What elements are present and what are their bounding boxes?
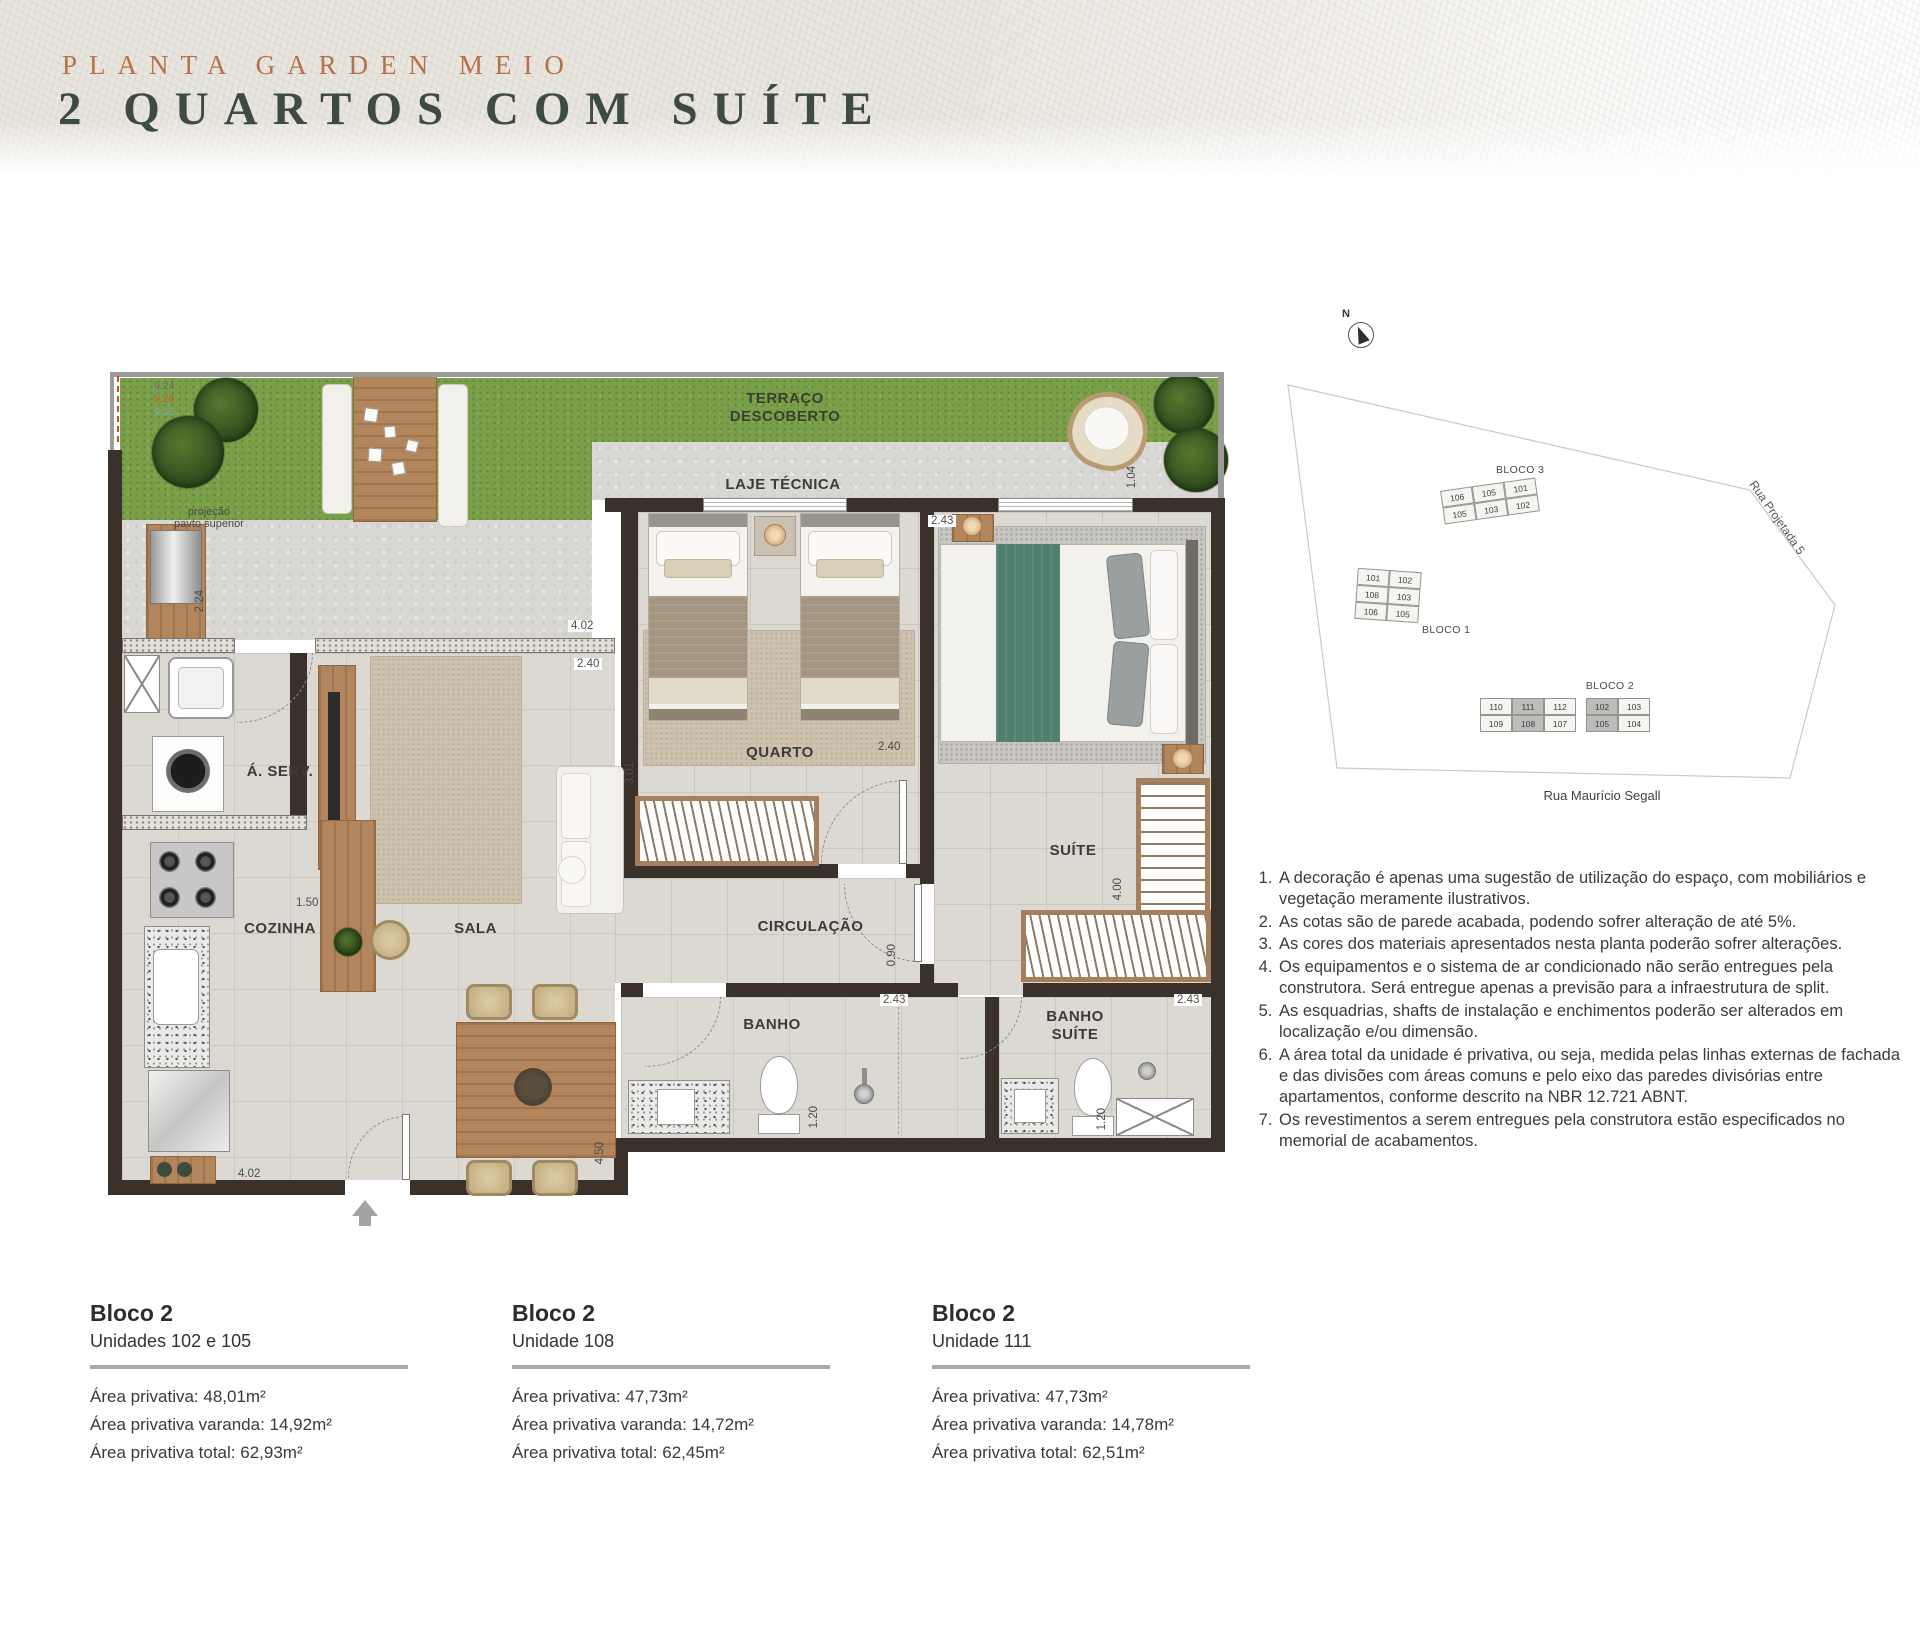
label-cozinha: COZINHA (220, 920, 340, 938)
level-920: 9.20 (154, 393, 174, 405)
unit-info-111: Bloco 2 Unidade 111 Área privativa: 47,7… (932, 1300, 1277, 1471)
label-circulacao: CIRCULAÇÃO (738, 918, 883, 936)
unit-cell: 109 (1480, 715, 1512, 732)
site-map: N BLOCO 3 106 105 101 105 103 102 BLOCO … (1090, 300, 1900, 820)
divider (90, 1365, 408, 1369)
bloco2-label: BLOCO 2 (1530, 680, 1690, 692)
label-suite: SUÍTE (1008, 842, 1138, 860)
brochure-page: PLANTA GARDEN MEIO 2 QUARTOS COM SUÍTE (0, 0, 1920, 1646)
level-915: 9.15 (154, 406, 174, 418)
note-item: As esquadrias, shafts de instalação e en… (1277, 1001, 1909, 1044)
stepping-stone (391, 461, 406, 476)
unit-name: Unidade 108 (512, 1331, 857, 1352)
stepping-stone (405, 439, 419, 453)
unit-cell: 110 (1480, 698, 1512, 715)
unit-block-title: Bloco 2 (932, 1300, 1277, 1327)
street-label-mauricio-segall: Rua Maurício Segall (1482, 788, 1722, 803)
unit-cell-highlighted: 105 (1586, 715, 1618, 732)
page-title: 2 QUARTOS COM SUÍTE (58, 82, 888, 136)
area-varanda: Área privativa varanda: 14,78m² (932, 1415, 1277, 1435)
dim-quarto-height: 3.01 (624, 762, 636, 784)
dining-chair (466, 1160, 512, 1196)
dim-sala-right: 4.50 (594, 1142, 606, 1164)
label-laje-tecnica: LAJE TÉCNICA (703, 476, 863, 494)
wall (906, 864, 920, 878)
wall (410, 1180, 628, 1195)
unit-cell: 102 (1389, 570, 1422, 589)
label-quarto: QUARTO (710, 744, 850, 762)
unit-cell-highlighted: 102 (1586, 698, 1618, 715)
lot-boundary (1090, 300, 1900, 820)
deck (353, 375, 437, 522)
floor-plan: TERRAÇO DESCOBERTO LAJE TÉCNICA QUARTO S… (108, 300, 1228, 1235)
sun-lounger (438, 384, 468, 527)
sun-lounger (322, 384, 352, 514)
wall (615, 864, 838, 878)
bloco2-building-left: 110 111 112 109 108 107 (1480, 698, 1576, 732)
wall (920, 498, 934, 884)
laundry-tank (168, 657, 234, 719)
dining-chair (532, 984, 578, 1020)
area-privativa: Área privativa: 47,73m² (932, 1387, 1277, 1407)
toilet (760, 1056, 798, 1114)
plan-kicker: PLANTA GARDEN MEIO (62, 50, 576, 81)
wall (621, 1138, 1225, 1152)
note-item: As cores dos materiais apresentados nest… (1277, 934, 1909, 955)
shower-partition (898, 1002, 899, 1134)
wall (605, 498, 703, 512)
label-aserv: Á. SERV. (220, 763, 340, 781)
note-item: A decoração é apenas uma sugestão de uti… (1277, 868, 1909, 911)
kitchen-bar (320, 820, 376, 992)
unit-cell-highlighted: 111 (1512, 698, 1544, 715)
bed-runner-green (996, 544, 1060, 742)
unit-cell: 104 (1618, 715, 1650, 732)
dim-banho-suite-width: 2.43 (1174, 994, 1202, 1006)
plant-icon (152, 416, 224, 488)
unit-name: Unidade 111 (932, 1331, 1277, 1352)
masonry-wall (315, 638, 615, 653)
toilet (758, 1114, 800, 1134)
bloco1-label: BLOCO 1 (1422, 624, 1470, 636)
stepping-stone (368, 448, 383, 463)
stove (150, 842, 234, 918)
wall (726, 983, 958, 997)
dining-chair (466, 984, 512, 1020)
sala-rug (370, 656, 522, 904)
entry-arrow-icon (359, 1215, 371, 1226)
dim-banho-suite-height: 1.20 (1096, 1108, 1108, 1130)
dim-sala-top2: 2.40 (574, 658, 602, 670)
unit-block-title: Bloco 2 (90, 1300, 435, 1327)
banho-suite-vanity (1001, 1078, 1059, 1134)
area-varanda: Área privativa varanda: 14,72m² (512, 1415, 857, 1435)
label-terraco: TERRAÇO DESCOBERTO (700, 390, 870, 426)
masonry-wall (122, 815, 307, 830)
lamp-icon (764, 524, 786, 546)
throw-pillow (558, 856, 586, 884)
dim-banho-height: 1.20 (808, 1106, 820, 1128)
fridge (148, 1070, 230, 1152)
unit-cell: 112 (1544, 698, 1576, 715)
table-centerpiece (514, 1068, 552, 1106)
unit-info-108: Bloco 2 Unidade 108 Área privativa: 47,7… (512, 1300, 857, 1471)
label-sala: SALA (418, 920, 533, 938)
wall (108, 1180, 345, 1195)
terrace-railing-top (110, 372, 1222, 377)
bar-stool (370, 920, 410, 960)
unit-cell: 107 (1544, 715, 1576, 732)
label-banho-suite: BANHO SUÍTE (1020, 1008, 1130, 1044)
single-bed (648, 513, 748, 721)
terrace-railing-left (110, 374, 114, 452)
bloco2-building-right: 102 103 105 104 (1586, 698, 1650, 732)
unit-cell: 105 (1386, 604, 1419, 623)
area-privativa: Área privativa: 47,73m² (512, 1387, 857, 1407)
stepping-stone (383, 425, 396, 438)
shaft-symbol (124, 655, 160, 713)
unit-cell: 106 (1354, 602, 1387, 621)
shower-icon (1138, 1062, 1156, 1080)
wall (621, 983, 643, 997)
entry-arrow-icon (352, 1200, 378, 1216)
unit-cell: 103 (1618, 698, 1650, 715)
unit-name: Unidades 102 e 105 (90, 1331, 435, 1352)
kitchen-cabinet (150, 1156, 216, 1184)
area-total: Área privativa total: 62,45m² (512, 1443, 857, 1463)
divider (932, 1365, 1250, 1369)
dim-cozinha: 1.50 (296, 897, 318, 909)
unit-info-102-105: Bloco 2 Unidades 102 e 105 Área privativ… (90, 1300, 435, 1471)
kitchen-counter (144, 926, 210, 1068)
entry-door-leaf (402, 1114, 410, 1180)
unit-cell-highlighted: 108 (1512, 715, 1544, 732)
bloco1-building: 101 102 108 103 106 105 (1354, 568, 1421, 623)
bloco3-label: BLOCO 3 (1496, 464, 1544, 476)
dim-suite-height: 4.00 (1112, 878, 1124, 900)
door-leaf (914, 884, 922, 962)
dim-circulacao: 0.90 (886, 944, 898, 966)
dim-cozinha-bottom: 4.02 (238, 1168, 260, 1180)
shower-arm (862, 1068, 867, 1084)
area-varanda: Área privativa varanda: 14,92m² (90, 1415, 435, 1435)
note-item: Os revestimentos a serem entregues pela … (1277, 1110, 1909, 1153)
note-item: A área total da unidade é privativa, ou … (1277, 1045, 1909, 1109)
legal-notes-list: A decoração é apenas uma sugestão de uti… (1255, 868, 1909, 1154)
lamp-icon (962, 516, 982, 536)
shower-icon (854, 1084, 874, 1104)
quarto-wardrobe (635, 796, 819, 866)
shower-box (1116, 1098, 1194, 1136)
door-leaf (899, 780, 907, 864)
dining-chair (532, 1160, 578, 1196)
projection-line (117, 376, 119, 442)
wall (108, 450, 122, 1195)
banho-vanity (628, 1080, 730, 1134)
compass-north-label: N (1342, 308, 1350, 320)
dim-sala-top: 4.02 (568, 620, 596, 632)
suite-wardrobe (1021, 910, 1211, 982)
divider (512, 1365, 830, 1369)
washing-machine (152, 736, 224, 812)
note-item: As cotas são de parede acabada, podendo … (1277, 912, 1909, 933)
label-banho: BANHO (716, 1016, 828, 1034)
level-924: 9.24 (154, 380, 174, 392)
dim-banho-width: 2.43 (880, 994, 908, 1006)
area-privativa: Área privativa: 48,01m² (90, 1387, 435, 1407)
dim-quarto-width: 2.40 (878, 741, 900, 753)
window (703, 498, 847, 512)
single-bed (800, 513, 900, 721)
stepping-stone (363, 407, 379, 423)
sofa (556, 766, 624, 914)
note-item: Os equipamentos e o sistema de ar condic… (1277, 957, 1909, 1000)
label-projecao: projeção pavto superior (144, 506, 274, 530)
area-total: Área privativa total: 62,51m² (932, 1443, 1277, 1463)
compass-icon (1348, 322, 1374, 348)
unit-block-title: Bloco 2 (512, 1300, 857, 1327)
masonry-wall (122, 638, 235, 653)
dim-terraco-left: 2.24 (194, 590, 206, 612)
dim-suite-width: 2.43 (928, 515, 956, 527)
area-total: Área privativa total: 62,93m² (90, 1443, 435, 1463)
